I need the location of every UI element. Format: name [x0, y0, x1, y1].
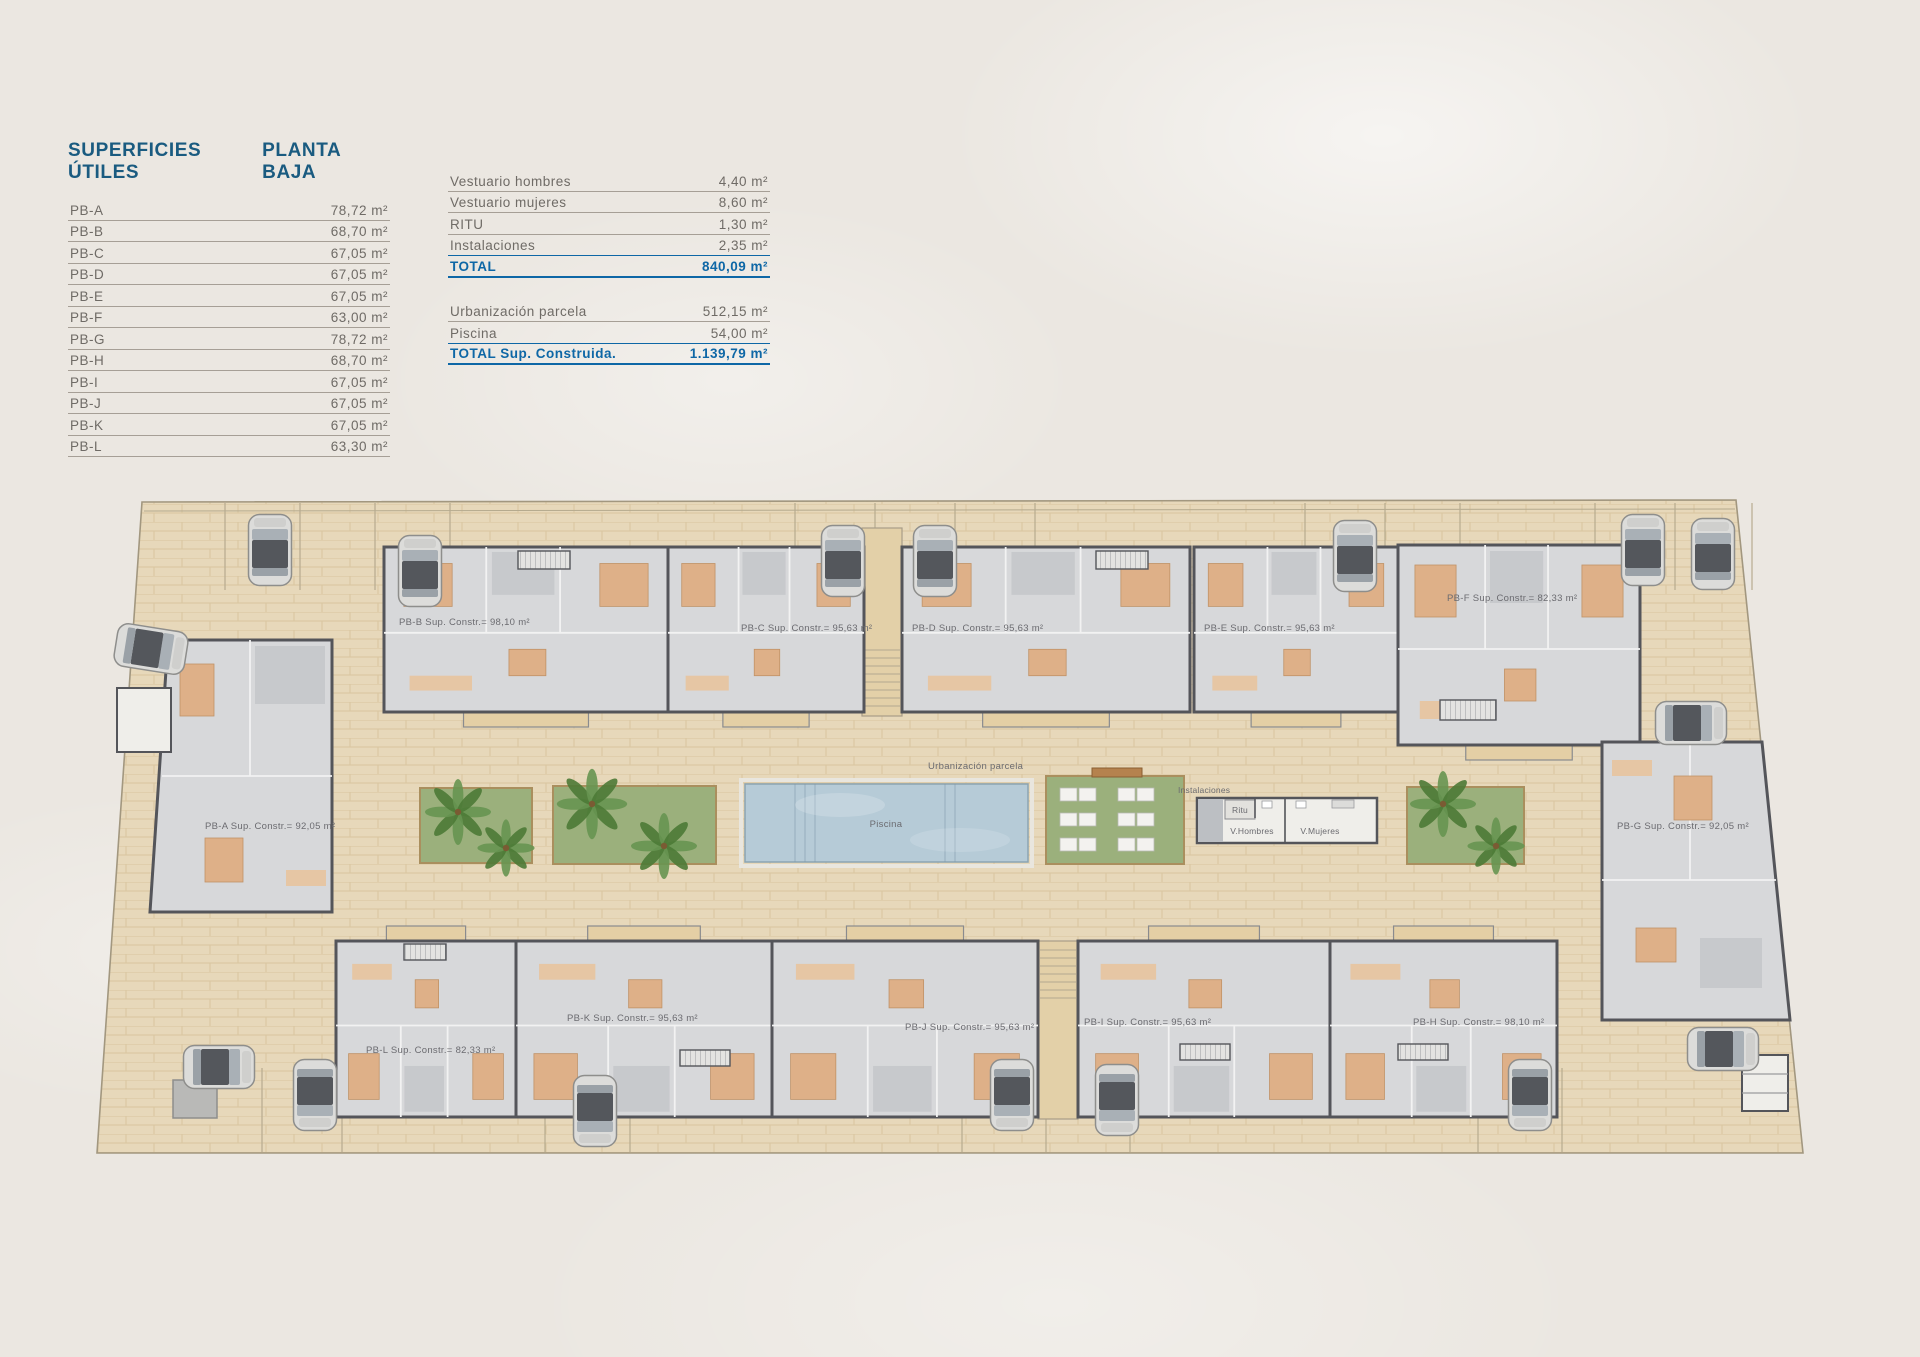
- area-row-label: PB-J: [70, 396, 101, 411]
- useful-areas-subtitle: PLANTA BAJA: [262, 140, 390, 184]
- summary-grand-total-row: TOTAL Sup. Construida. 1.139,79 m²: [448, 344, 770, 366]
- area-row-value: 68,70 m²: [331, 353, 388, 368]
- unit-label-pb-l: PB-L Sup. Constr.= 82,33 m²: [366, 1045, 495, 1056]
- unit-label-pb-h: PB-H Sup. Constr.= 98,10 m²: [1413, 1017, 1544, 1028]
- area-row-label: PB-C: [70, 246, 104, 261]
- summary-row-value: 1,30 m²: [719, 217, 768, 232]
- summary-row-value: 8,60 m²: [719, 195, 768, 210]
- area-row-value: 67,05 m²: [331, 418, 388, 433]
- area-row-label: PB-H: [70, 353, 104, 368]
- summary-grand-total-label: TOTAL Sup. Construida.: [450, 346, 616, 361]
- label-v-mujeres: V.Mujeres: [1300, 826, 1339, 836]
- summary-row: RITU 1,30 m²: [448, 213, 770, 235]
- unit-block-pb-g: [1602, 742, 1790, 1020]
- unit-label-pb-d: PB-D Sup. Constr.= 95,63 m²: [912, 623, 1043, 634]
- area-row-value: 67,05 m²: [331, 375, 388, 390]
- area-row: PB-C 67,05 m²: [68, 242, 390, 264]
- area-row: PB-H 68,70 m²: [68, 350, 390, 372]
- area-row-value: 63,00 m²: [331, 310, 388, 325]
- summary-row: Vestuario hombres 4,40 m²: [448, 170, 770, 192]
- area-row-value: 67,05 m²: [331, 246, 388, 261]
- summary-row-label: Vestuario mujeres: [450, 195, 567, 210]
- label-urbanizacion-parcela: Urbanización parcela: [928, 761, 1024, 772]
- area-row: PB-G 78,72 m²: [68, 328, 390, 350]
- area-row: PB-K 67,05 m²: [68, 414, 390, 436]
- area-row: PB-L 63,30 m²: [68, 436, 390, 458]
- useful-areas-table: SUPERFICIES ÚTILES PLANTA BAJA PB-A 78,7…: [68, 140, 390, 457]
- summary-total-value: 840,09 m²: [702, 259, 768, 274]
- summary-grand-total-value: 1.139,79 m²: [690, 346, 768, 361]
- unit-label-pb-e: PB-E Sup. Constr.= 95,63 m²: [1204, 623, 1335, 634]
- area-row-label: PB-I: [70, 375, 98, 390]
- label-piscina: Piscina: [870, 819, 903, 830]
- useful-areas-title: SUPERFICIES ÚTILES: [68, 140, 262, 184]
- unit-label-pb-k: PB-K Sup. Constr.= 95,63 m²: [567, 1013, 698, 1024]
- facilities-building: [1197, 798, 1377, 843]
- summary-extra-rows: Urbanización parcela 512,15 m² Piscina 5…: [448, 301, 770, 344]
- summary-extra-row: Piscina 54,00 m²: [448, 322, 770, 344]
- unit-label-pb-b: PB-B Sup. Constr.= 98,10 m²: [399, 617, 530, 628]
- summary-extra-row-value: 512,15 m²: [703, 304, 768, 319]
- area-row-value: 67,05 m²: [331, 396, 388, 411]
- useful-areas-rows: PB-A 78,72 m² PB-B 68,70 m² PB-C 67,05 m…: [68, 199, 390, 457]
- area-row-label: PB-K: [70, 418, 104, 433]
- area-row: PB-B 68,70 m²: [68, 221, 390, 243]
- summary-extra-row-label: Piscina: [450, 326, 497, 341]
- summary-total-row: TOTAL 840,09 m²: [448, 256, 770, 278]
- area-row-label: PB-A: [70, 203, 104, 218]
- area-row-value: 78,72 m²: [331, 332, 388, 347]
- summary-extra-row-value: 54,00 m²: [711, 326, 768, 341]
- unit-label-pb-j: PB-J Sup. Constr.= 95,63 m²: [905, 1022, 1034, 1033]
- area-row-value: 78,72 m²: [331, 203, 388, 218]
- unit-label-pb-a: PB-A Sup. Constr.= 92,05 m²: [205, 821, 335, 832]
- unit-label-pb-f: PB-F Sup. Constr.= 82,33 m²: [1447, 593, 1577, 604]
- bench: [1092, 768, 1142, 777]
- summary-row-value: 4,40 m²: [719, 174, 768, 189]
- storage-room: [117, 688, 171, 752]
- summary-extra-row: Urbanización parcela 512,15 m²: [448, 301, 770, 323]
- unit-label-pb-g: PB-G Sup. Constr.= 92,05 m²: [1617, 821, 1749, 832]
- summary-row-value: 2,35 m²: [719, 238, 768, 253]
- area-row-label: PB-B: [70, 224, 104, 239]
- useful-areas-header: SUPERFICIES ÚTILES PLANTA BAJA: [68, 140, 390, 184]
- area-row: PB-D 67,05 m²: [68, 264, 390, 286]
- area-row-value: 67,05 m²: [331, 289, 388, 304]
- page: SUPERFICIES ÚTILES PLANTA BAJA PB-A 78,7…: [0, 0, 1920, 1357]
- area-row: PB-I 67,05 m²: [68, 371, 390, 393]
- summary-rows: Vestuario hombres 4,40 m² Vestuario muje…: [448, 170, 770, 256]
- area-row: PB-A 78,72 m²: [68, 199, 390, 221]
- label-v-hombres: V.Hombres: [1230, 826, 1274, 836]
- area-row: PB-J 67,05 m²: [68, 393, 390, 415]
- area-row-label: PB-G: [70, 332, 105, 347]
- summary-row-label: Vestuario hombres: [450, 174, 571, 189]
- summary-row: Vestuario mujeres 8,60 m²: [448, 192, 770, 214]
- label-instalaciones: Instalaciones: [1178, 785, 1230, 795]
- unit-label-pb-i: PB-I Sup. Constr.= 95,63 m²: [1084, 1017, 1211, 1028]
- summary-row-label: Instalaciones: [450, 238, 535, 253]
- area-row-label: PB-L: [70, 439, 102, 454]
- area-row-label: PB-D: [70, 267, 104, 282]
- area-row-value: 67,05 m²: [331, 267, 388, 282]
- summary-extra-row-label: Urbanización parcela: [450, 304, 587, 319]
- label-ritu: Ritu: [1232, 805, 1248, 815]
- area-row-value: 68,70 m²: [331, 224, 388, 239]
- summary-table: Vestuario hombres 4,40 m² Vestuario muje…: [448, 170, 770, 365]
- area-row: PB-F 63,00 m²: [68, 307, 390, 329]
- area-row-value: 63,30 m²: [331, 439, 388, 454]
- summary-row: Instalaciones 2,35 m²: [448, 235, 770, 257]
- area-row-label: PB-E: [70, 289, 104, 304]
- unit-label-pb-c: PB-C Sup. Constr.= 95,63 m²: [741, 623, 872, 634]
- summary-total-label: TOTAL: [450, 259, 496, 274]
- area-row: PB-E 67,05 m²: [68, 285, 390, 307]
- summary-row-label: RITU: [450, 217, 484, 232]
- table-spacer: [448, 278, 770, 301]
- area-row-label: PB-F: [70, 310, 103, 325]
